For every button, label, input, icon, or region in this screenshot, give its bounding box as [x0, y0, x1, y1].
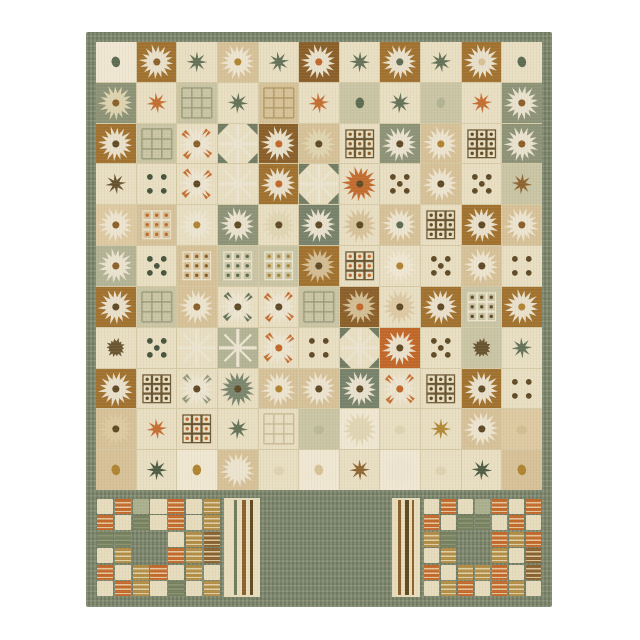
- patch-block: [509, 499, 524, 514]
- flower-motif: [96, 409, 136, 449]
- field-cell: [299, 450, 339, 490]
- field-cell: [462, 164, 502, 204]
- flower-motif: [380, 124, 420, 164]
- field-cell: [218, 124, 258, 164]
- field-cell: [259, 450, 299, 490]
- flower-motif: [462, 42, 502, 82]
- patch-block: [186, 515, 202, 530]
- patch-block: [475, 499, 490, 514]
- xstar-motif: [218, 124, 258, 164]
- field-cell: [137, 42, 177, 82]
- dotgrid-motif: [218, 246, 258, 286]
- flower-motif: [340, 205, 380, 245]
- flower-motif: [421, 287, 461, 327]
- field-cell: [177, 205, 217, 245]
- flower-motif: [502, 287, 542, 327]
- field-cell: [421, 450, 461, 490]
- dice5-motif: [137, 246, 177, 286]
- field-cell: [259, 246, 299, 286]
- field-cell: [299, 369, 339, 409]
- patch-block: [168, 548, 184, 563]
- patch-block: [492, 499, 507, 514]
- field-cell: [340, 328, 380, 368]
- field-cell: [462, 369, 502, 409]
- field-cell: [218, 409, 258, 449]
- patch-block: [458, 499, 473, 514]
- patch-block: [509, 565, 524, 580]
- field-cell: [462, 42, 502, 82]
- field-cell: [177, 246, 217, 286]
- flower-motif: [462, 369, 502, 409]
- patch-block: [509, 581, 524, 596]
- rug-bottom-section: [96, 498, 542, 597]
- flower-motif: [340, 369, 380, 409]
- patchwork-right: [423, 498, 542, 597]
- field-cell: [177, 287, 217, 327]
- field-cell: [299, 205, 339, 245]
- field-cell: [137, 369, 177, 409]
- flower-motif: [218, 450, 258, 490]
- fade-motif: [299, 409, 339, 449]
- field-cell: [177, 83, 217, 123]
- field-cell: [218, 328, 258, 368]
- dice4-motif: [137, 164, 177, 204]
- field-cell: [137, 450, 177, 490]
- patch-block: [97, 581, 113, 596]
- dot-motif: [177, 450, 217, 490]
- brick-panel-center: [263, 498, 389, 597]
- dot-motif: [421, 83, 461, 123]
- dotgrid-motif: [177, 409, 217, 449]
- patch-block: [492, 532, 507, 547]
- dotgrid-motif: [340, 124, 380, 164]
- patch-block: [186, 581, 202, 596]
- field-cell: [96, 328, 136, 368]
- patch-block: [424, 499, 439, 514]
- flower-motif: [259, 369, 299, 409]
- field-cell: [421, 83, 461, 123]
- flower-motif: [259, 124, 299, 164]
- flower-motif: [218, 369, 258, 409]
- patch-block: [115, 499, 131, 514]
- rug-border-band: [96, 490, 542, 498]
- patch-block: [115, 565, 131, 580]
- grid-motif: [137, 124, 177, 164]
- field-cell: [421, 369, 461, 409]
- dotgrid-motif: [137, 205, 177, 245]
- field-cell: [380, 450, 420, 490]
- dice5-motif: [137, 328, 177, 368]
- patch-block: [133, 581, 149, 596]
- patch-block: [133, 515, 149, 530]
- star-motif: [462, 450, 502, 490]
- field-cell: [259, 287, 299, 327]
- grid-motif: [137, 287, 177, 327]
- xstar-motif: [218, 164, 258, 204]
- patch-block: [526, 581, 541, 596]
- flower-motif: [96, 83, 136, 123]
- patch-block: [475, 515, 490, 530]
- patch-block: [204, 581, 220, 596]
- rug-main-field: [96, 42, 542, 490]
- patch-block: [441, 581, 456, 596]
- patch-block: [424, 548, 439, 563]
- dice5-motif: [380, 164, 420, 204]
- field-cell: [177, 450, 217, 490]
- flower-motif: [380, 328, 420, 368]
- star-motif: [218, 83, 258, 123]
- flower-motif: [259, 205, 299, 245]
- patch-block: [115, 515, 131, 530]
- field-cell: [96, 409, 136, 449]
- dotgrid-motif: [137, 369, 177, 409]
- patch-block: [424, 565, 439, 580]
- flower-motif: [259, 287, 299, 327]
- field-cell: [218, 287, 258, 327]
- field-cell: [421, 287, 461, 327]
- dice5-motif: [462, 164, 502, 204]
- field-cell: [380, 287, 420, 327]
- field-cell: [259, 369, 299, 409]
- patch-block: [475, 565, 490, 580]
- flower-motif: [96, 287, 136, 327]
- patch-block: [168, 581, 184, 596]
- field-cell: [96, 246, 136, 286]
- field-cell: [137, 83, 177, 123]
- field-cell: [96, 42, 136, 82]
- flower-motif: [218, 287, 258, 327]
- patchwork-left: [96, 498, 221, 597]
- flower-motif: [502, 205, 542, 245]
- stripes-right: [392, 498, 420, 597]
- flower-motif: [502, 83, 542, 123]
- flower-motif: [96, 369, 136, 409]
- rug-photo: [86, 32, 552, 607]
- vertical-stripe: [250, 500, 253, 595]
- patch-block: [492, 548, 507, 563]
- field-cell: [340, 287, 380, 327]
- dotgrid-motif: [462, 124, 502, 164]
- field-cell: [380, 42, 420, 82]
- flower-motif: [380, 246, 420, 286]
- field-cell: [259, 328, 299, 368]
- field-cell: [299, 83, 339, 123]
- patch-block: [204, 532, 220, 547]
- star-motif: [380, 83, 420, 123]
- flower-motif: [299, 42, 339, 82]
- patch-block: [186, 565, 202, 580]
- field-cell: [502, 328, 542, 368]
- patch-block: [509, 548, 524, 563]
- flower-motif: [340, 164, 380, 204]
- field-cell: [137, 246, 177, 286]
- patch-block: [526, 565, 541, 580]
- flower-motif: [177, 164, 217, 204]
- dotgrid-motif: [259, 246, 299, 286]
- star-motif: [421, 42, 461, 82]
- flower-motif: [380, 450, 420, 490]
- patch-block: [492, 565, 507, 580]
- dice5-motif: [421, 328, 461, 368]
- patch-block: [168, 515, 184, 530]
- fade-motif: [259, 450, 299, 490]
- field-cell: [462, 409, 502, 449]
- star-motif: [340, 42, 380, 82]
- flower-motif: [421, 164, 461, 204]
- field-cell: [96, 83, 136, 123]
- xstar-motif: [340, 328, 380, 368]
- field-cell: [502, 42, 542, 82]
- star-motif: [502, 328, 542, 368]
- field-cell: [218, 246, 258, 286]
- blob-motif: [96, 328, 136, 368]
- field-cell: [462, 287, 502, 327]
- field-cell: [340, 246, 380, 286]
- flower-motif: [299, 205, 339, 245]
- field-cell: [137, 164, 177, 204]
- patch-block: [526, 532, 541, 547]
- patch-block: [186, 532, 202, 547]
- field-cell: [96, 369, 136, 409]
- star-motif: [299, 83, 339, 123]
- field-cell: [502, 164, 542, 204]
- field-cell: [421, 409, 461, 449]
- flower-motif: [462, 205, 502, 245]
- flower-motif: [380, 205, 420, 245]
- vertical-stripe: [242, 500, 246, 595]
- xstar-motif: [218, 328, 258, 368]
- star-motif: [96, 164, 136, 204]
- patch-block: [150, 515, 166, 530]
- star-motif: [137, 450, 177, 490]
- field-cell: [218, 450, 258, 490]
- dot-motif: [299, 450, 339, 490]
- field-cell: [137, 124, 177, 164]
- field-cell: [299, 246, 339, 286]
- flower-motif: [177, 205, 217, 245]
- flower-motif: [218, 42, 258, 82]
- flower-motif: [380, 42, 420, 82]
- field-cell: [421, 205, 461, 245]
- flower-motif: [462, 246, 502, 286]
- field-cell: [137, 328, 177, 368]
- patch-block: [133, 565, 149, 580]
- patch-block: [492, 515, 507, 530]
- field-cell: [96, 124, 136, 164]
- field-cell: [502, 287, 542, 327]
- field-cell: [218, 205, 258, 245]
- xstar-motif: [177, 328, 217, 368]
- field-cell: [421, 124, 461, 164]
- grid-motif: [259, 409, 299, 449]
- patch-block: [133, 499, 149, 514]
- field-cell: [340, 124, 380, 164]
- field-cell: [299, 328, 339, 368]
- patch-block: [441, 515, 456, 530]
- star-motif: [137, 409, 177, 449]
- patch-block: [441, 565, 456, 580]
- flower-motif: [177, 124, 217, 164]
- field-cell: [421, 42, 461, 82]
- patch-block: [509, 515, 524, 530]
- star-motif: [259, 42, 299, 82]
- field-cell: [340, 164, 380, 204]
- field-cell: [137, 205, 177, 245]
- flower-motif: [462, 409, 502, 449]
- star-motif: [421, 409, 461, 449]
- field-cell: [380, 369, 420, 409]
- field-cell: [177, 124, 217, 164]
- dot-motif: [340, 83, 380, 123]
- fade-motif: [380, 409, 420, 449]
- field-cell: [259, 409, 299, 449]
- field-cell: [421, 246, 461, 286]
- field-cell: [462, 205, 502, 245]
- flower-motif: [96, 205, 136, 245]
- field-cell: [462, 83, 502, 123]
- field-cell: [462, 450, 502, 490]
- grid-motif: [259, 83, 299, 123]
- flower-motif: [177, 287, 217, 327]
- field-cell: [340, 205, 380, 245]
- field-cell: [299, 42, 339, 82]
- dotgrid-motif: [421, 205, 461, 245]
- patch-block: [168, 499, 184, 514]
- star-motif: [340, 450, 380, 490]
- field-cell: [502, 83, 542, 123]
- vertical-stripe: [398, 500, 401, 595]
- flower-motif: [96, 246, 136, 286]
- field-cell: [502, 124, 542, 164]
- field-cell: [502, 369, 542, 409]
- patch-block: [458, 565, 473, 580]
- star-motif: [462, 83, 502, 123]
- patch-block: [458, 581, 473, 596]
- patch-block: [186, 548, 202, 563]
- patch-block: [204, 565, 220, 580]
- dotgrid-motif: [177, 246, 217, 286]
- patch-block: [115, 581, 131, 596]
- flower-motif: [502, 124, 542, 164]
- field-cell: [502, 409, 542, 449]
- flower-motif: [340, 409, 380, 449]
- dotgrid-motif: [421, 369, 461, 409]
- flower-motif: [299, 124, 339, 164]
- star-motif: [502, 164, 542, 204]
- patch-block: [509, 532, 524, 547]
- dotgrid-motif: [340, 246, 380, 286]
- field-cell: [380, 164, 420, 204]
- patch-block: [441, 532, 456, 547]
- patch-block: [97, 499, 113, 514]
- vertical-stripe: [412, 500, 414, 595]
- flower-motif: [340, 287, 380, 327]
- patch-block: [115, 548, 131, 563]
- field-cell: [259, 124, 299, 164]
- dice4-motif: [502, 246, 542, 286]
- product-photo: [0, 0, 640, 640]
- flower-motif: [96, 124, 136, 164]
- field-cell: [380, 409, 420, 449]
- patch-block: [526, 515, 541, 530]
- dot-motif: [96, 42, 136, 82]
- field-cell: [259, 164, 299, 204]
- patch-block: [458, 515, 473, 530]
- field-cell: [218, 83, 258, 123]
- field-cell: [259, 42, 299, 82]
- fade-motif: [502, 409, 542, 449]
- grid-motif: [299, 287, 339, 327]
- field-cell: [380, 83, 420, 123]
- field-cell: [259, 205, 299, 245]
- star-motif: [137, 83, 177, 123]
- patch-block: [424, 532, 439, 547]
- field-cell: [177, 42, 217, 82]
- field-cell: [96, 205, 136, 245]
- flower-motif: [380, 287, 420, 327]
- field-cell: [299, 124, 339, 164]
- field-cell: [177, 369, 217, 409]
- field-cell: [177, 409, 217, 449]
- field-cell: [462, 124, 502, 164]
- patch-block: [441, 548, 456, 563]
- dot-motif: [502, 450, 542, 490]
- field-cell: [96, 450, 136, 490]
- patch-block: [97, 548, 113, 563]
- field-cell: [177, 328, 217, 368]
- flower-motif: [259, 164, 299, 204]
- xstar-motif: [299, 164, 339, 204]
- field-cell: [340, 450, 380, 490]
- field-cell: [218, 164, 258, 204]
- patch-block: [150, 499, 166, 514]
- flower-motif: [380, 369, 420, 409]
- field-cell: [96, 287, 136, 327]
- patch-block: [168, 565, 184, 580]
- patch-block: [97, 515, 113, 530]
- patch-block: [204, 548, 220, 563]
- patch-block: [150, 565, 166, 580]
- dice4-motif: [502, 369, 542, 409]
- field-cell: [462, 246, 502, 286]
- field-cell: [421, 328, 461, 368]
- dice5-motif: [421, 246, 461, 286]
- dot-motif: [96, 450, 136, 490]
- flower-motif: [421, 124, 461, 164]
- field-cell: [502, 205, 542, 245]
- vertical-stripe: [405, 500, 409, 595]
- field-cell: [299, 287, 339, 327]
- patch-block: [475, 581, 490, 596]
- patch-block: [424, 515, 439, 530]
- field-cell: [502, 246, 542, 286]
- field-cell: [177, 164, 217, 204]
- fade-motif: [421, 450, 461, 490]
- field-cell: [137, 287, 177, 327]
- patch-block: [186, 499, 202, 514]
- field-cell: [340, 369, 380, 409]
- field-cell: [462, 328, 502, 368]
- flower-motif: [177, 369, 217, 409]
- field-cell: [380, 124, 420, 164]
- blob-motif: [462, 328, 502, 368]
- dot-motif: [502, 42, 542, 82]
- field-cell: [380, 246, 420, 286]
- field-cell: [137, 409, 177, 449]
- flower-motif: [137, 42, 177, 82]
- patch-block: [441, 499, 456, 514]
- patch-block: [168, 532, 184, 547]
